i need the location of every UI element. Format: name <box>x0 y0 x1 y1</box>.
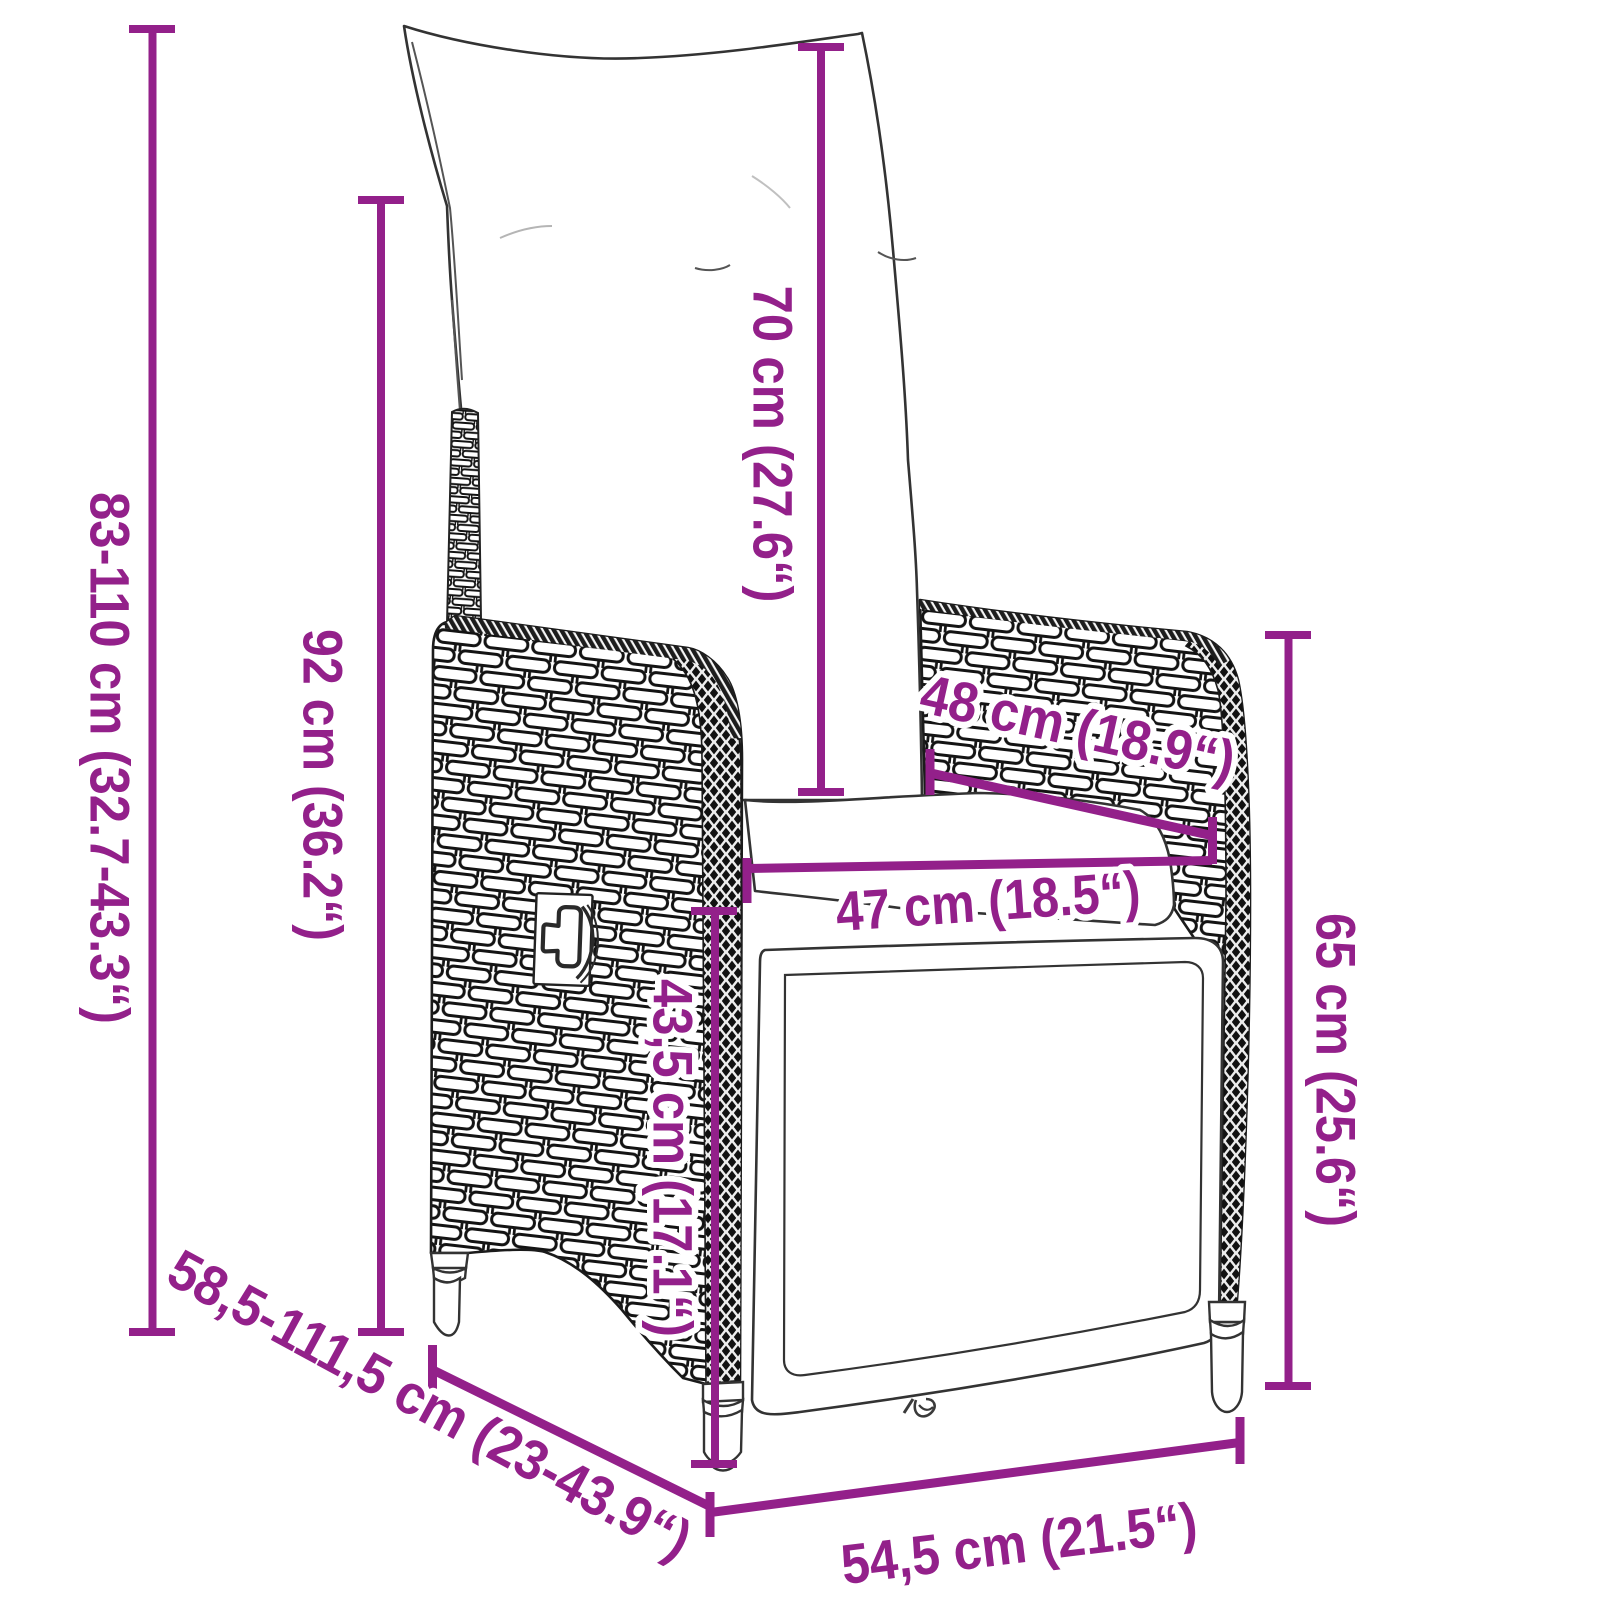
svg-text:92 cm (36.2“): 92 cm (36.2“) <box>291 629 354 941</box>
svg-text:83-110 cm (32.7-43.3“): 83-110 cm (32.7-43.3“) <box>78 492 141 1024</box>
svg-text:70 cm (27.6“): 70 cm (27.6“) <box>741 286 804 603</box>
svg-text:43,5 cm (17.1“): 43,5 cm (17.1“) <box>641 979 704 1337</box>
svg-text:65 cm (25.6“): 65 cm (25.6“) <box>1304 913 1367 1227</box>
